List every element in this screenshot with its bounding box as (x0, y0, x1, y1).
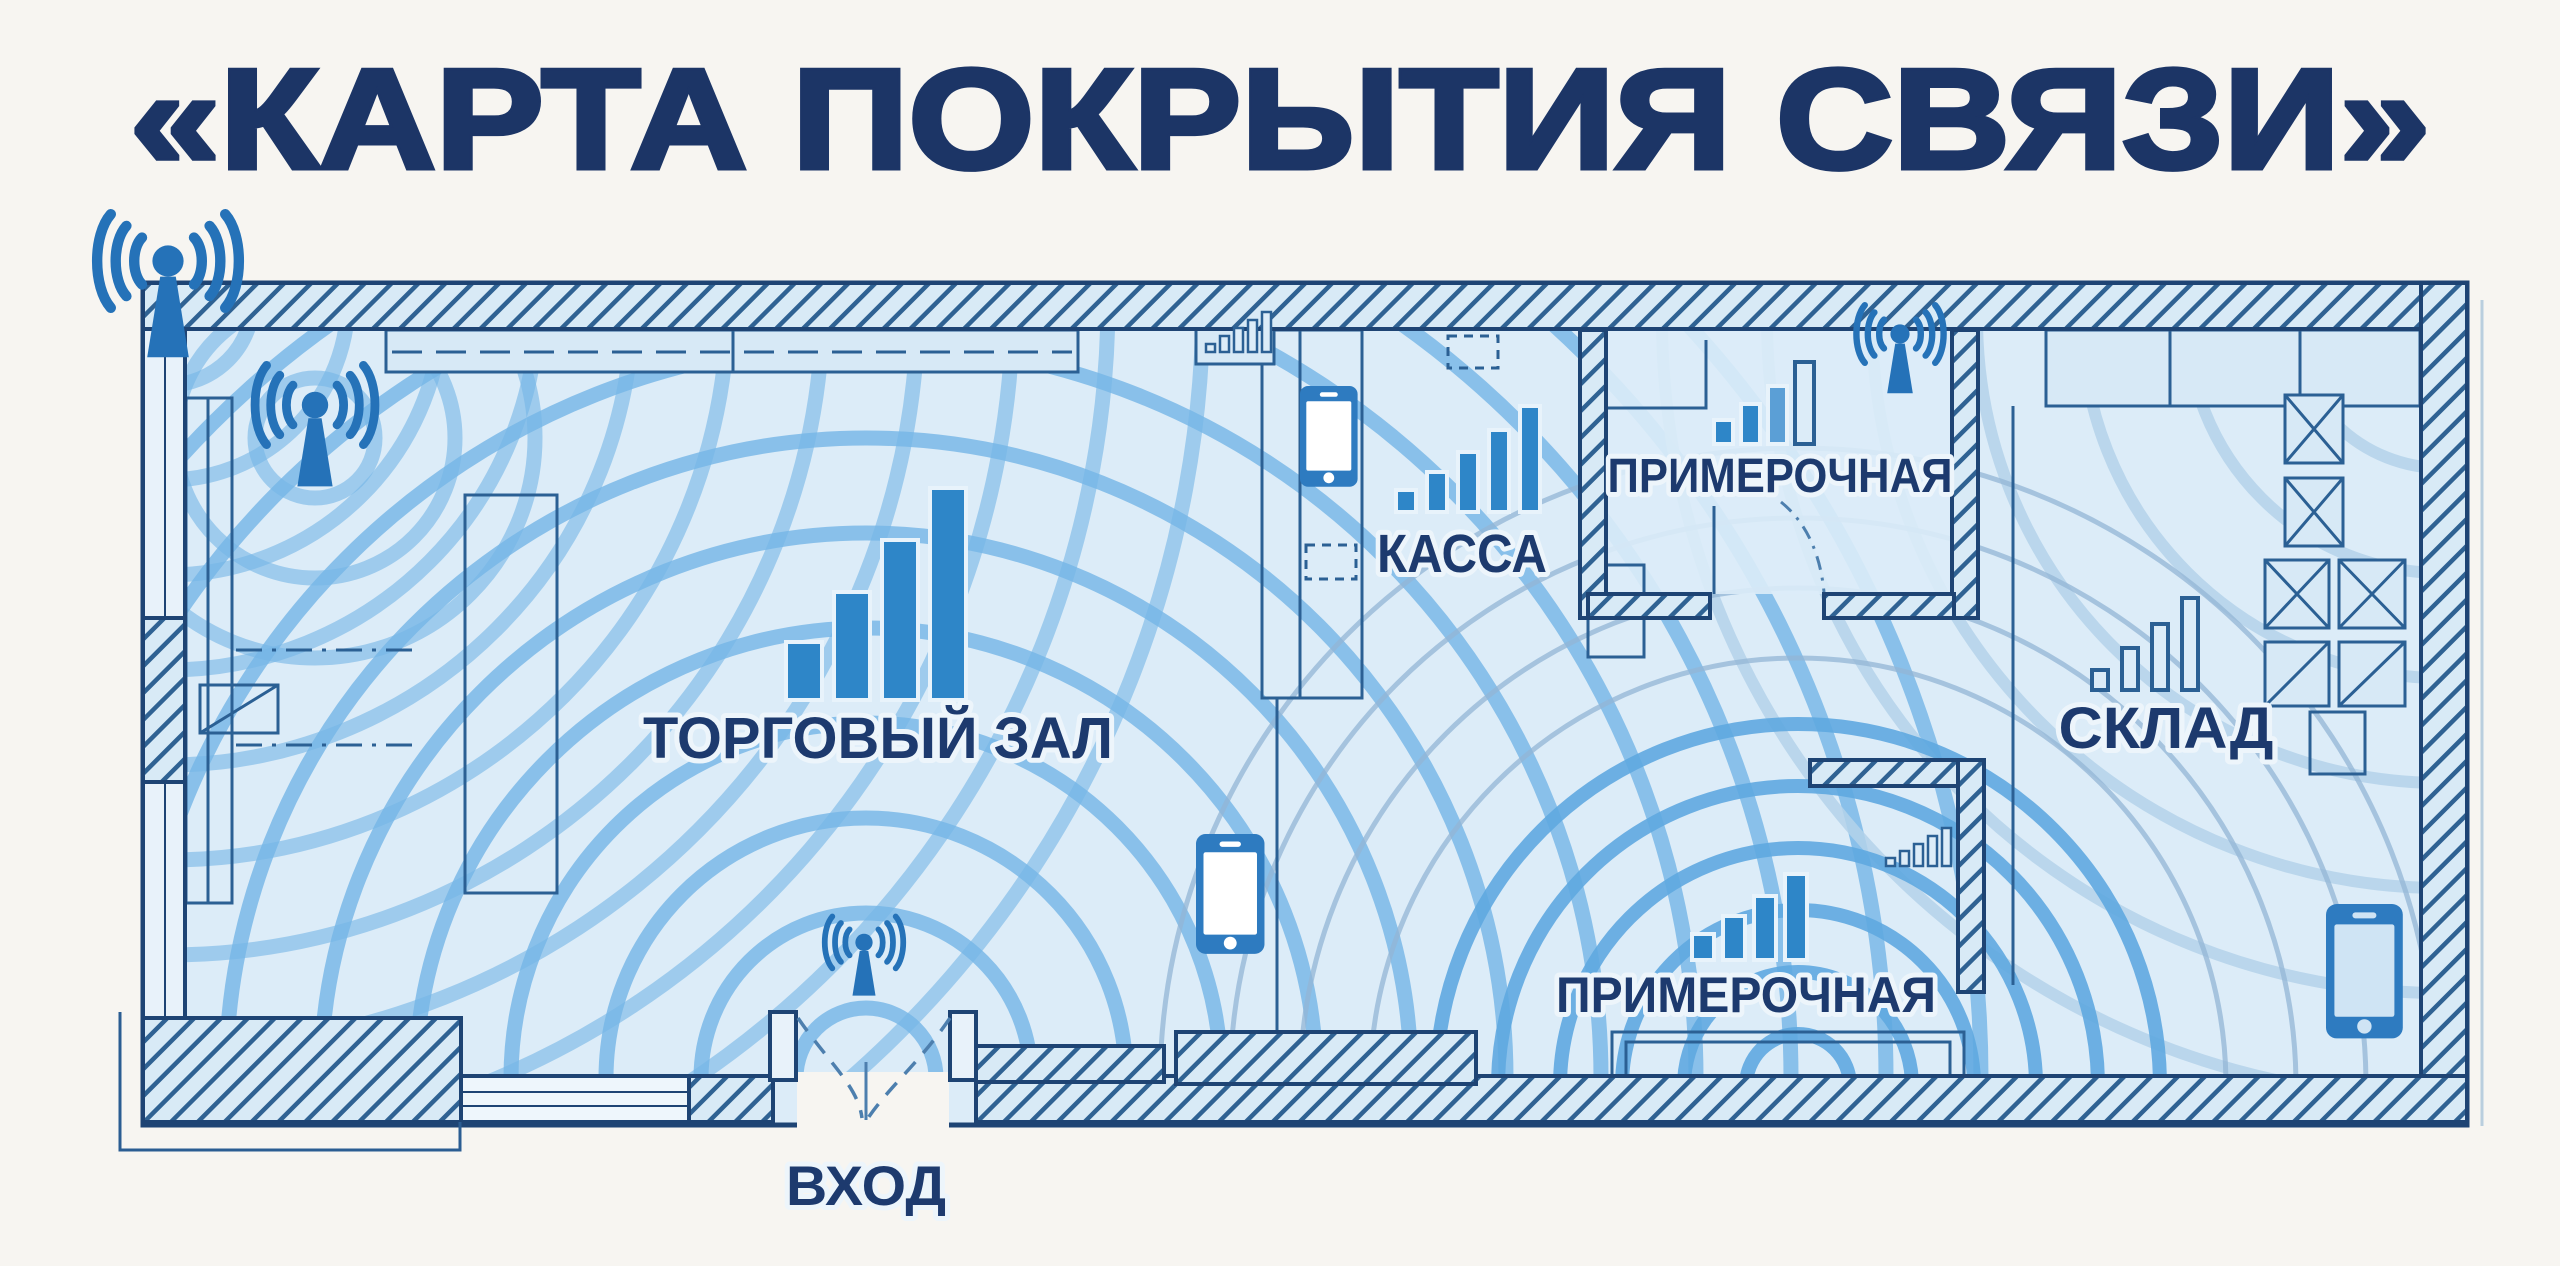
phone-warehouse-icon (2326, 904, 2403, 1038)
label-cashier: КАССА (1377, 524, 1547, 584)
phone-cash-desk-icon (1300, 386, 1358, 487)
label-fitting-room-top: ПРИМЕРОЧНАЯ (1608, 450, 1953, 503)
door-post-left (770, 1012, 796, 1080)
label-sales-floor: ТОРГОВЫЙ ЗАЛ (643, 706, 1113, 771)
wall-bottom-left (143, 1018, 461, 1122)
door-post-right (950, 1012, 976, 1080)
wall-top (143, 283, 2467, 329)
fitting-top-wall-right (1952, 330, 1978, 618)
label-entrance: ВХОД (786, 1154, 946, 1217)
warehouse-shelf-row (2046, 330, 2420, 406)
page-title: «КАРТА ПОКРЫТИЯ СВЯЗИ» (130, 40, 2430, 199)
storefront-window (461, 1076, 689, 1122)
label-fitting-room-bottom: ПРИМЕРОЧНАЯ (1556, 967, 1936, 1023)
phone-sales-floor-icon (1196, 834, 1264, 954)
bench-hatch-1 (976, 1046, 1164, 1082)
coverage-map: «КАРТА ПОКРЫТИЯ СВЯЗИ» (0, 0, 2560, 1266)
bench-hatch-2 (1176, 1032, 1476, 1084)
fitting-bottom-wall-right (1958, 760, 1984, 992)
fitting-top-wall-left (1580, 330, 1606, 618)
wall-right (2421, 283, 2467, 1125)
fitting-bottom-wall-top (1810, 760, 1962, 786)
coverage-map-poster: «КАРТА ПОКРЫТИЯ СВЯЗИ» (0, 0, 2560, 1266)
label-warehouse: СКЛАД (2059, 696, 2274, 761)
